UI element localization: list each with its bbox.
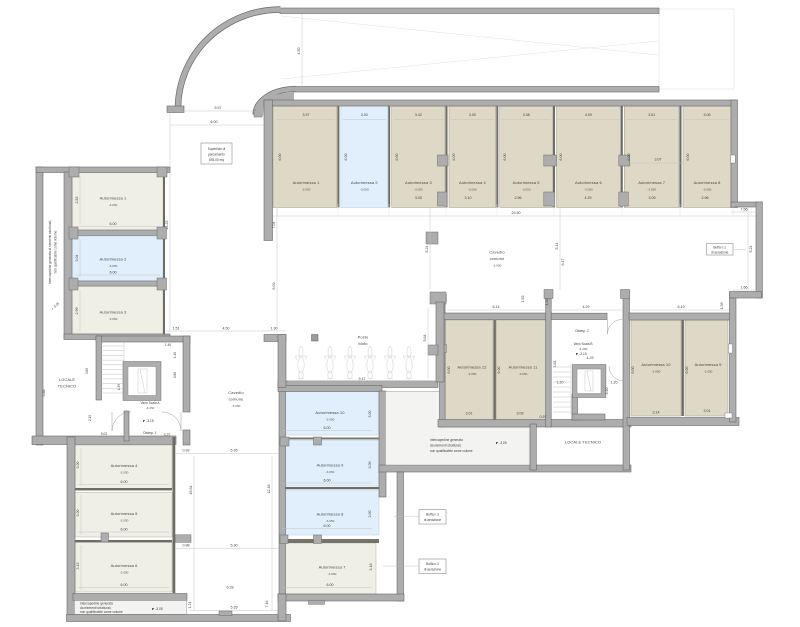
svg-text:-3.050: -3.050	[704, 370, 713, 374]
svg-text:Autorimessa 12: Autorimessa 12	[457, 365, 487, 370]
svg-text:2.96: 2.96	[702, 196, 709, 200]
svg-text:Autorimessa 8: Autorimessa 8	[317, 512, 345, 517]
svg-text:6.00: 6.00	[121, 528, 128, 532]
svg-text:3.08: 3.08	[704, 113, 711, 117]
svg-text:Autorimessa 7: Autorimessa 7	[638, 180, 666, 185]
svg-text:0.98: 0.98	[183, 544, 190, 548]
svg-text:6.28: 6.28	[227, 586, 234, 590]
svg-text:-3.050: -3.050	[120, 519, 129, 523]
svg-text:1.33: 1.33	[545, 299, 549, 306]
svg-text:6.03: 6.03	[272, 283, 276, 290]
svg-text:6.00: 6.00	[278, 154, 282, 161]
svg-text:-3.050: -3.050	[468, 372, 477, 376]
svg-text:3.51: 3.51	[648, 113, 655, 117]
svg-text:3.01: 3.01	[704, 409, 711, 413]
svg-text:29.50: 29.50	[512, 211, 521, 215]
svg-text:15.64: 15.64	[189, 486, 193, 495]
svg-text:6.47: 6.47	[561, 259, 565, 266]
svg-text:Autorimessa 2: Autorimessa 2	[100, 257, 128, 262]
svg-text:6.00: 6.00	[211, 120, 218, 124]
svg-text:5.88: 5.88	[42, 390, 46, 397]
svg-text:3.00: 3.00	[368, 462, 372, 469]
svg-text:LOCALE: LOCALE	[59, 377, 76, 382]
svg-text:3.00: 3.00	[368, 411, 372, 418]
svg-text:Posto: Posto	[358, 335, 369, 340]
svg-text:3.10: 3.10	[465, 196, 472, 200]
svg-text:-3.050: -3.050	[522, 188, 531, 192]
svg-text:5.30: 5.30	[231, 544, 238, 548]
svg-text:7.04: 7.04	[272, 222, 276, 229]
svg-text:3.00: 3.00	[469, 113, 476, 117]
svg-text:3.81: 3.81	[553, 361, 557, 368]
svg-text:6.00: 6.00	[685, 367, 689, 374]
svg-text:Buffa n.3: Buffa n.3	[426, 562, 439, 566]
svg-text:Autorimessa 7: Autorimessa 7	[319, 565, 347, 570]
svg-text:0.97: 0.97	[540, 415, 547, 419]
svg-text:Superficie di: Superficie di	[208, 147, 226, 151]
svg-text:-3.050: -3.050	[120, 571, 129, 575]
svg-text:5.35: 5.35	[231, 606, 238, 610]
svg-text:6.00: 6.00	[497, 367, 501, 374]
svg-text:Autorimessa 1: Autorimessa 1	[100, 196, 128, 201]
svg-text:Autorimessa 6: Autorimessa 6	[575, 180, 603, 185]
svg-text:2.96: 2.96	[515, 196, 522, 200]
svg-text:6.00: 6.00	[110, 271, 117, 275]
svg-text:5.24: 5.24	[425, 246, 429, 253]
svg-text:4.50: 4.50	[223, 327, 230, 331]
svg-text:-3.050: -3.050	[326, 519, 335, 523]
svg-text:3.20: 3.20	[605, 388, 609, 395]
svg-text:4.29: 4.29	[585, 196, 592, 200]
svg-text:3.38: 3.38	[523, 113, 530, 117]
svg-text:◤ -3.05: ◤ -3.05	[152, 607, 163, 611]
svg-text:6.00: 6.00	[395, 154, 399, 161]
svg-text:Vano Scala B: Vano Scala B	[573, 342, 592, 346]
svg-text:-3.050: -3.050	[326, 470, 335, 474]
svg-text:Autorimessa 5: Autorimessa 5	[111, 511, 139, 516]
svg-text:3.09: 3.09	[517, 412, 524, 416]
svg-text:-3.050: -3.050	[703, 188, 712, 192]
svg-text:non qualificabile come volume: non qualificabile come volume	[54, 230, 58, 273]
svg-text:non qualificabile come volume: non qualificabile come volume	[80, 610, 123, 614]
svg-text:da elementi strutturali,: da elementi strutturali,	[430, 444, 461, 448]
svg-text:6.00: 6.00	[324, 524, 331, 528]
svg-text:6.00: 6.00	[327, 583, 334, 587]
svg-text:0.93: 0.93	[183, 449, 190, 453]
svg-text:6.00: 6.00	[121, 480, 128, 484]
svg-text:0.60: 0.60	[173, 372, 177, 378]
svg-text:◤ -3.15: ◤ -3.15	[143, 419, 154, 423]
svg-text:1.20: 1.20	[611, 381, 618, 385]
svg-text:3.01: 3.01	[466, 412, 473, 416]
svg-text:4.29: 4.29	[587, 356, 594, 360]
svg-text:di aerazione: di aerazione	[424, 568, 442, 572]
svg-text:-3.050: -3.050	[109, 317, 118, 321]
svg-text:3.07: 3.07	[655, 158, 662, 162]
svg-text:◤ -3.05: ◤ -3.05	[496, 441, 507, 445]
svg-text:Autorimessa 8: Autorimessa 8	[694, 180, 722, 185]
svg-text:Autorimessa 11: Autorimessa 11	[509, 365, 539, 370]
svg-text:6.19: 6.19	[678, 305, 685, 309]
svg-text:1.40: 1.40	[165, 343, 171, 347]
svg-text:-3.050: -3.050	[652, 370, 661, 374]
svg-text:di aerazione: di aerazione	[424, 518, 442, 522]
svg-text:5.57: 5.57	[215, 106, 222, 110]
svg-text:Buffa n.1: Buffa n.1	[713, 246, 726, 250]
svg-text:9.17: 9.17	[359, 377, 366, 381]
svg-text:5.35: 5.35	[231, 449, 238, 453]
svg-text:-3.050: -3.050	[232, 404, 241, 408]
svg-text:1.39: 1.39	[117, 384, 121, 390]
svg-text:2.99: 2.99	[75, 308, 79, 315]
svg-text:1.51: 1.51	[173, 327, 180, 331]
svg-text:comune: comune	[229, 397, 245, 402]
svg-text:non qualificabile come volume: non qualificabile come volume	[430, 449, 473, 453]
svg-text:6.00: 6.00	[324, 479, 331, 483]
svg-text:-4.250: -4.250	[146, 406, 155, 410]
svg-text:4.50: 4.50	[297, 48, 301, 55]
svg-text:3.00: 3.00	[415, 196, 422, 200]
svg-text:TECNICO: TECNICO	[58, 384, 77, 389]
svg-text:Moto: Moto	[358, 341, 368, 346]
svg-text:LOCALE TECNICO: LOCALE TECNICO	[565, 440, 601, 445]
svg-text:-3.050: -3.050	[519, 372, 528, 376]
svg-text:-3.050: -3.050	[360, 188, 369, 192]
svg-text:5.24: 5.24	[749, 246, 753, 253]
svg-text:di aerazione: di aerazione	[711, 251, 729, 255]
svg-text:Autorimessa 9: Autorimessa 9	[695, 362, 723, 367]
svg-text:-3.050: -3.050	[468, 188, 477, 192]
svg-text:-3.050: -3.050	[414, 188, 423, 192]
svg-text:5.14: 5.14	[555, 243, 559, 250]
svg-text:-3.050: -3.050	[109, 264, 118, 268]
svg-text:comune: comune	[490, 256, 506, 261]
svg-text:1.66: 1.66	[741, 286, 748, 290]
svg-text:6.00: 6.00	[324, 426, 331, 430]
svg-text:3.00: 3.00	[76, 462, 80, 469]
svg-text:Disimp. 1: Disimp. 1	[143, 431, 157, 435]
svg-text:1.39: 1.39	[720, 303, 724, 310]
svg-text:5.02: 5.02	[101, 432, 107, 436]
svg-text:3.04: 3.04	[75, 255, 79, 262]
svg-text:-3.050: -3.050	[302, 188, 311, 192]
svg-text:6.00: 6.00	[559, 154, 563, 161]
svg-text:parcamento: parcamento	[208, 153, 225, 157]
svg-text:Vano Scala A: Vano Scala A	[141, 401, 161, 405]
svg-text:1.53: 1.53	[521, 296, 525, 303]
svg-text:6.00: 6.00	[627, 154, 631, 161]
svg-text:7.16: 7.16	[265, 601, 269, 608]
svg-text:1.30: 1.30	[271, 327, 278, 331]
svg-text:3.27: 3.27	[164, 433, 171, 437]
svg-text:3.18: 3.18	[369, 564, 373, 571]
svg-text:◤ -3.15: ◤ -3.15	[576, 352, 587, 356]
svg-text:-3.050: -3.050	[109, 203, 118, 207]
svg-text:6.00: 6.00	[447, 367, 451, 374]
svg-text:4.29: 4.29	[583, 305, 590, 309]
svg-text:Cavedio: Cavedio	[228, 390, 244, 395]
svg-text:3.00: 3.00	[76, 510, 80, 517]
svg-text:Disimp. 2: Disimp. 2	[575, 329, 589, 333]
svg-text:3.00: 3.00	[361, 113, 368, 117]
svg-text:6.00: 6.00	[503, 154, 507, 161]
svg-text:6.00: 6.00	[686, 154, 690, 161]
svg-text:-3.050: -3.050	[647, 188, 656, 192]
svg-text:Autorimessa 4: Autorimessa 4	[459, 180, 487, 185]
svg-text:-3.050: -3.050	[328, 572, 337, 576]
svg-text:3.69: 3.69	[85, 368, 89, 374]
svg-text:Autorimessa 10: Autorimessa 10	[641, 362, 671, 367]
svg-text:1.20: 1.20	[557, 381, 564, 385]
svg-text:Autorimessa 3: Autorimessa 3	[405, 180, 433, 185]
svg-text:Buffa n.3: Buffa n.3	[426, 513, 439, 517]
svg-text:3.09: 3.09	[649, 196, 656, 200]
svg-text:2.19: 2.19	[88, 415, 92, 421]
svg-text:2.83: 2.83	[75, 197, 79, 204]
svg-text:Autorimessa 3: Autorimessa 3	[100, 310, 128, 315]
svg-text:Autorimessa 10: Autorimessa 10	[315, 410, 345, 415]
svg-text:7.56: 7.56	[741, 208, 748, 212]
svg-text:6.00: 6.00	[452, 154, 456, 161]
svg-text:-3.050: -3.050	[584, 188, 593, 192]
svg-text:893.00 mq: 893.00 mq	[209, 158, 224, 162]
svg-text:3.14: 3.14	[653, 411, 660, 415]
svg-text:4.09: 4.09	[585, 113, 592, 117]
svg-text:-3.050: -3.050	[493, 264, 502, 268]
svg-text:5.64: 5.64	[423, 335, 427, 342]
svg-text:3.00: 3.00	[368, 511, 372, 518]
svg-text:6.00: 6.00	[344, 154, 348, 161]
svg-text:6.00: 6.00	[110, 222, 117, 226]
svg-text:3.97: 3.97	[303, 113, 310, 117]
svg-text:Autorimessa 5: Autorimessa 5	[513, 180, 541, 185]
svg-text:Autorimessa 2: Autorimessa 2	[351, 180, 379, 185]
svg-text:Autorimessa 6: Autorimessa 6	[111, 563, 139, 568]
svg-text:3.13: 3.13	[76, 563, 80, 570]
svg-text:Intercapedine generata: Intercapedine generata	[430, 438, 463, 442]
svg-text:1.40: 1.40	[173, 352, 177, 358]
svg-text:Cavedio: Cavedio	[489, 250, 505, 255]
svg-text:12.48: 12.48	[267, 485, 271, 494]
svg-text:Autorimessa 1: Autorimessa 1	[293, 180, 321, 185]
svg-text:3.42: 3.42	[415, 113, 422, 117]
svg-text:6.14: 6.14	[493, 305, 500, 309]
svg-text:Autorimessa 4: Autorimessa 4	[111, 463, 139, 468]
svg-text:6.00: 6.00	[631, 367, 635, 374]
svg-text:-3.050: -3.050	[326, 418, 335, 422]
svg-text:Intercapedine generata di elem: Intercapedine generata di elementi strut…	[48, 220, 52, 284]
svg-text:1.21: 1.21	[188, 602, 192, 609]
svg-text:-4.250: -4.250	[579, 347, 588, 351]
svg-text:Autorimessa 9: Autorimessa 9	[317, 463, 345, 468]
svg-text:6.00: 6.00	[121, 583, 128, 587]
svg-text:-3.050: -3.050	[120, 471, 129, 475]
